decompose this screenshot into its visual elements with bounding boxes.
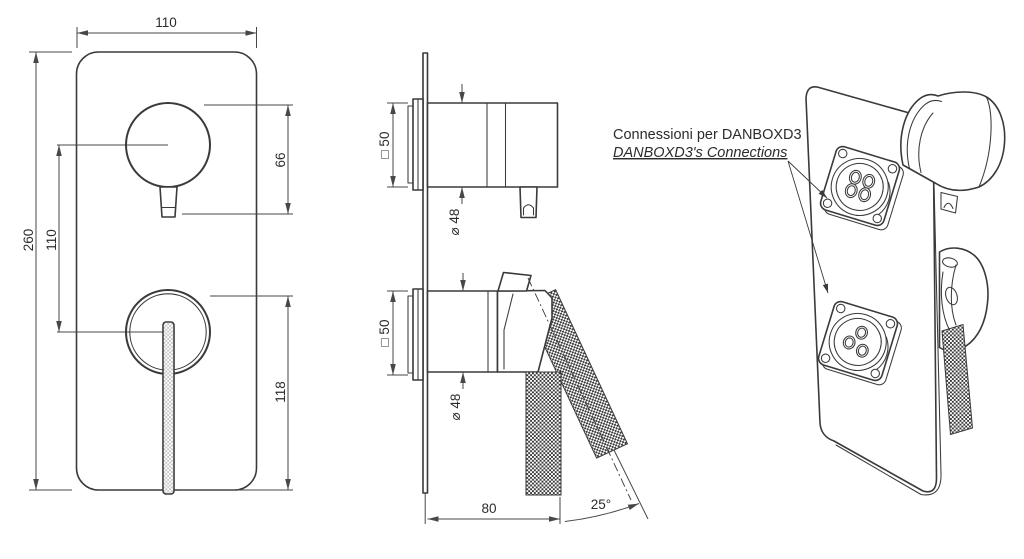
dim-label-lower-handle: 118 — [273, 381, 288, 403]
iso-view: Connessioni per DANBOXD3 DANBOXD3's Conn… — [613, 87, 1005, 495]
dim-lower-square: □ 50 — [377, 291, 408, 375]
side-lever-straight — [526, 372, 561, 495]
dim-label-front-width: 110 — [155, 15, 177, 30]
side-view: □ 50 ⌀ 48 — [377, 53, 648, 524]
dim-front-height: 260 — [21, 52, 72, 490]
dim-label-lower-square: □ 50 — [377, 320, 392, 347]
side-upper-flange — [408, 99, 423, 190]
side-lower-flange — [408, 289, 423, 380]
dim-label-front-spacing: 110 — [44, 229, 59, 251]
front-view: 110 260 110 66 118 — [21, 15, 293, 494]
side-upper-knob — [428, 103, 558, 218]
annotation-line-english: DANBOXD3's Connections — [613, 145, 787, 161]
dim-front-width: 110 — [77, 15, 257, 48]
technical-drawing-canvas: 110 260 110 66 118 — [0, 0, 1024, 559]
technical-drawing-page: 110 260 110 66 118 — [0, 0, 1024, 559]
front-lever — [163, 322, 174, 494]
dim-label-upper-square: □ 50 — [377, 132, 392, 159]
dim-label-front-height: 260 — [21, 229, 36, 252]
dim-label-depth: 80 — [481, 501, 496, 516]
side-lever-base — [498, 291, 553, 373]
dim-upper-square: □ 50 — [377, 103, 408, 187]
dim-label-lower-diameter: ⌀ 48 — [448, 394, 463, 421]
dim-label-upper-diameter: ⌀ 48 — [447, 209, 462, 236]
dim-front-spacing: 110 — [44, 145, 59, 332]
dim-label-upper-knob: 66 — [273, 152, 288, 167]
dim-label-angle: 25° — [591, 497, 611, 512]
connections-annotation: Connessioni per DANBOXD3 DANBOXD3's Conn… — [613, 127, 828, 293]
side-lever-flap — [498, 273, 531, 292]
dim-angle: 25° — [565, 450, 648, 522]
dim-depth: 80 — [428, 497, 561, 524]
annotation-line-italian: Connessioni per DANBOXD3 — [613, 127, 802, 143]
